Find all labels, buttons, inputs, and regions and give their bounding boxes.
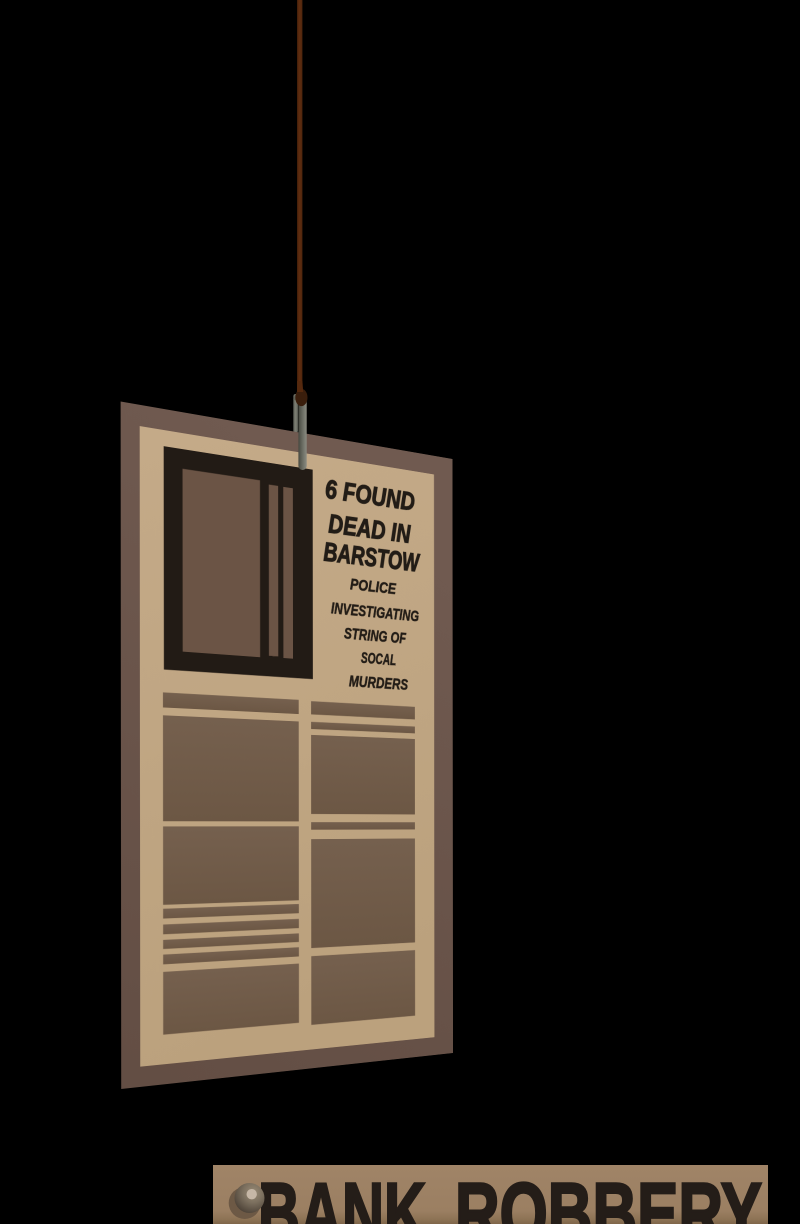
svg-text:ROBBERY: ROBBERY <box>455 1166 762 1224</box>
svg-text:BANK: BANK <box>258 1166 426 1224</box>
